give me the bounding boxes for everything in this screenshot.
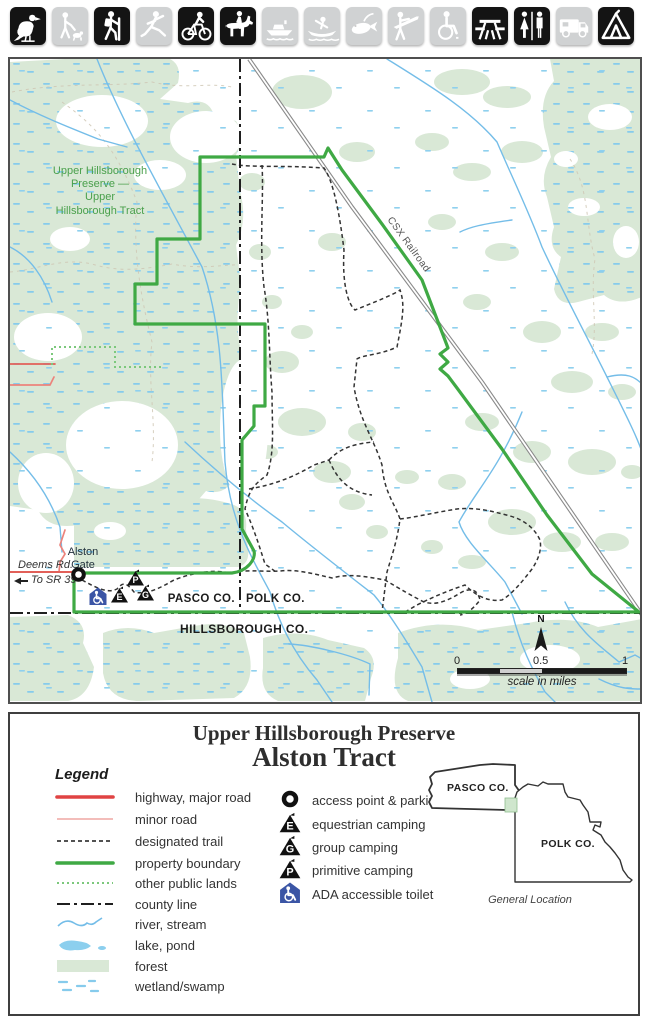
ada-toilet-icon [278, 882, 302, 904]
svg-text:P: P [286, 867, 293, 879]
svg-text:G: G [142, 590, 149, 600]
primitive-tent-icon: P [278, 858, 302, 880]
deems-rd-label: Deems Rd. [18, 559, 73, 572]
preserve-name-label: Upper Hillsborough Preserve — Upper Hill… [29, 165, 171, 218]
north-label: N [534, 614, 548, 626]
scale-tick-0: 0 [454, 655, 460, 667]
access-point-icon [278, 788, 302, 810]
svg-text:E: E [286, 821, 293, 833]
map-canvas: Upper Hillsborough Preserve — Upper Hill… [8, 57, 642, 704]
inset-caption: General Location [423, 894, 637, 906]
scale-caption: scale in miles [457, 676, 627, 688]
horseback-riding-icon[interactable] [220, 7, 256, 45]
ada-toilet-icon [89, 587, 107, 611]
access-point-icon [70, 566, 87, 588]
inset-polk-label: POLK CO. [541, 838, 595, 850]
scale-tick-1: 1 [622, 655, 628, 667]
tent-camping-icon[interactable] [598, 7, 634, 45]
pasco-county-label: PASCO CO. [165, 593, 235, 607]
scale-tick-05: 0.5 [533, 655, 548, 667]
polk-outline [507, 782, 632, 882]
restrooms-icon[interactable] [514, 7, 550, 45]
hiking-icon[interactable] [94, 7, 130, 45]
equestrian-camping-icon: E [110, 586, 129, 609]
legend-panel: Upper Hillsborough Preserve Alston Tract… [8, 712, 640, 1016]
hunting-icon[interactable] [388, 7, 424, 45]
group-tent-icon: G [278, 835, 302, 857]
skating-icon[interactable] [136, 7, 172, 45]
picnic-icon[interactable] [472, 7, 508, 45]
polk-county-label: POLK CO. [246, 593, 305, 607]
svg-text:E: E [116, 592, 122, 602]
tract-highlight [505, 798, 517, 812]
birdwatching-icon[interactable] [10, 7, 46, 45]
legend-heading: Legend [55, 766, 108, 783]
canoeing-icon[interactable] [304, 7, 340, 45]
group-camping-icon: G [136, 584, 155, 607]
scale-bar: 0 0.5 1 scale in miles [457, 655, 627, 693]
inset-pasco-label: PASCO CO. [447, 782, 509, 794]
fishing-icon[interactable] [346, 7, 382, 45]
hillsborough-county-label: HILLSBOROUGH CO. [180, 622, 308, 636]
scale-bar-graphic [457, 668, 627, 674]
general-location-inset: PASCO CO. POLK CO. [423, 762, 637, 894]
rv-camping-icon[interactable] [556, 7, 592, 45]
bicycling-icon[interactable] [178, 7, 214, 45]
equestrian-tent-icon: E [278, 812, 302, 834]
svg-text:G: G [286, 844, 294, 856]
motorboating-icon[interactable] [262, 7, 298, 45]
wheelchair-access-icon[interactable] [430, 7, 466, 45]
dog-walking-icon[interactable] [52, 7, 88, 45]
